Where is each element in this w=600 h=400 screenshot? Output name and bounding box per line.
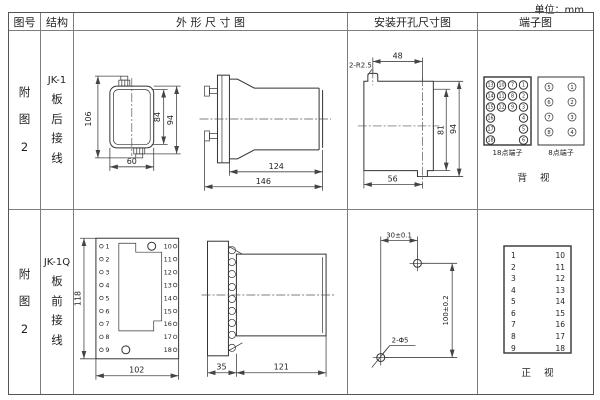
- row2-outline-cell: 1 2 3 4 5 6 7 8 9 10 11 12 13: [74, 210, 348, 394]
- view-label-front: 正 视: [521, 367, 558, 379]
- terminal-number: 9: [511, 344, 516, 353]
- terminal-number: 10: [555, 251, 565, 260]
- fig-char: 2: [21, 142, 28, 154]
- terminal-points-8: 5 1 6 2 7 3 8 4: [545, 83, 576, 136]
- model-label: JK-1: [48, 76, 66, 86]
- top-connector: [119, 76, 130, 86]
- terminal-number: 15: [487, 104, 493, 110]
- structure-char: 前: [51, 296, 63, 308]
- terminal-number: 9: [105, 346, 109, 354]
- terminal-number: 6: [511, 309, 516, 318]
- mounting-hole: [122, 346, 130, 354]
- terminal-number: 16: [487, 115, 493, 121]
- terminal-number: 13: [164, 281, 172, 289]
- terminal-numbers-left: 1 2 3 4 5 6 7 8 9: [511, 251, 516, 353]
- structure-char: 线: [51, 335, 63, 347]
- header-terminal-label: 端子图: [519, 14, 552, 30]
- jk1-outline-drawing: 106 84 94 60: [74, 31, 347, 210]
- terminal-number: 6: [522, 137, 525, 143]
- dim-value: 35: [216, 363, 226, 372]
- terminal-number: 5: [105, 294, 109, 302]
- terminal-number: 5: [522, 126, 525, 132]
- header-outline: 外 形 尺 寸 图: [74, 13, 348, 31]
- terminal-points-18: 13 10 7 1 14 11 8 2 15 12 9 3 16 4 17 5: [486, 80, 527, 143]
- terminal-number: 17: [487, 126, 493, 132]
- terminal-number: 6: [547, 99, 550, 105]
- dim-value: 60: [127, 156, 137, 165]
- terminal-number: 16: [164, 320, 172, 328]
- front-terminals-left: 1 2 3 4 5 6 7 8 9: [100, 242, 110, 354]
- note-holes: 2-Φ5: [383, 337, 416, 354]
- terminal-number: 18: [487, 137, 493, 143]
- terminal-number: 17: [164, 333, 172, 341]
- dimension-table: 图号 结构 外 形 尺 寸 图 安装开孔尺寸图 端子图 附 图 2 JK-1 板…: [8, 12, 594, 395]
- front-terminals-right: 10 11 12 13 14 15 16 17 18: [164, 242, 177, 354]
- dim-value: 100±0.2: [442, 295, 450, 325]
- terminal-number: 7: [547, 114, 550, 120]
- row1-terminal-cell: 13 10 7 1 14 11 8 2 15 12 9 3 16 4 17 5: [478, 31, 593, 210]
- jk1q-side-view: 35 121: [202, 241, 336, 377]
- terminal-number: 4: [522, 115, 525, 121]
- note-value: 2-R2.5: [349, 61, 372, 69]
- row1-fig-no: 附 图 2: [9, 31, 41, 210]
- terminal-number: 3: [105, 268, 109, 276]
- terminal-number: 3: [570, 114, 573, 120]
- terminal-number: 14: [555, 297, 565, 306]
- jk1q-terminal-drawing: 1 2 3 4 5 6 7 8 9 10 11 12 13 14 15: [478, 210, 593, 394]
- terminal-number: 8: [105, 333, 109, 341]
- terminal-number: 1: [511, 251, 516, 260]
- dim-118: 118: [74, 238, 96, 359]
- terminal-number: 7: [511, 82, 514, 88]
- terminal-number: 2: [522, 93, 525, 99]
- terminal-number: 11: [498, 93, 504, 99]
- dim-81: 81: [433, 89, 450, 170]
- structure-char: 板: [51, 276, 63, 288]
- fig-char: 附: [19, 87, 31, 99]
- flange: [208, 241, 229, 356]
- terminal-number: 13: [487, 82, 493, 88]
- dim-56: 56: [364, 170, 423, 188]
- jk1-front-view: 106 84 94 60: [84, 76, 181, 171]
- dim-value: 81: [436, 124, 445, 134]
- terminal-number: 2: [105, 255, 109, 263]
- dim-value: 146: [256, 176, 271, 185]
- terminal-number: 8: [511, 93, 514, 99]
- terminal-number: 10: [164, 242, 172, 250]
- jk1-side-view: 124 146: [200, 75, 332, 191]
- header-fig-no: 图号: [9, 13, 41, 31]
- row1-install-cell: 2-R2.5 48 81 94: [348, 31, 478, 210]
- dim-121: 121: [236, 363, 326, 373]
- structure-char: 后: [51, 114, 63, 126]
- terminal-number: 3: [511, 274, 516, 283]
- terminal-8-label: 8点端子: [548, 148, 573, 157]
- terminal-number: 15: [555, 309, 565, 318]
- terminal-number: 5: [511, 297, 516, 306]
- cutout-outline: [364, 73, 433, 176]
- dim-value: 84: [153, 111, 162, 121]
- terminal-number: 9: [511, 104, 514, 110]
- terminal-number: 8: [511, 332, 516, 341]
- dim-value: 94: [449, 123, 458, 133]
- row2-terminal-cell: 1 2 3 4 5 6 7 8 9 10 11 12 13 14 15: [478, 210, 593, 394]
- terminal-screws: [205, 86, 218, 141]
- jk1-install-drawing: 2-R2.5 48 81 94: [348, 31, 477, 210]
- terminal-number: 2: [570, 99, 573, 105]
- terminal-number: 14: [164, 294, 172, 302]
- row1-structure: JK-1 板 后 接 线: [41, 31, 74, 210]
- terminal-number: 11: [555, 263, 565, 272]
- dim-value: 48: [393, 51, 403, 60]
- dim-value: 121: [274, 363, 289, 372]
- model-label: JK-1Q: [44, 258, 70, 268]
- dim-value: 106: [84, 111, 93, 126]
- header-install-label: 安装开孔尺寸图: [374, 14, 451, 30]
- terminal-number: 14: [487, 93, 493, 99]
- dim-60: 60: [110, 147, 154, 170]
- structure-char: 接: [51, 315, 63, 327]
- dim-value: 56: [388, 174, 398, 183]
- dim-48: 48: [373, 51, 423, 81]
- header-terminal: 端子图: [478, 13, 593, 31]
- terminal-screws: [228, 247, 235, 352]
- terminal-number: 1: [570, 84, 573, 90]
- terminal-number: 7: [511, 320, 516, 329]
- terminal-number: 4: [511, 286, 516, 295]
- terminal-number: 17: [555, 332, 565, 341]
- jk1q-front-view: 1 2 3 4 5 6 7 8 9 10 11 12 13: [74, 238, 179, 379]
- dim-30: 30±0.1: [381, 232, 418, 350]
- terminal-numbers-right: 10 11 12 13 14 15 16 17 18: [555, 251, 565, 353]
- inner-cutout-outline: [119, 243, 162, 331]
- terminal-number: 3: [522, 104, 525, 110]
- terminal-number: 12: [498, 104, 504, 110]
- row2-install-cell: 30±0.1 100±0.2 2-Φ5: [348, 210, 478, 394]
- terminal-number: 2: [511, 263, 516, 272]
- terminal-number: 5: [547, 84, 550, 90]
- note-value: 2-Φ5: [392, 337, 409, 345]
- dim-value: 30±0.1: [386, 232, 412, 240]
- header-install: 安装开孔尺寸图: [348, 13, 478, 31]
- row2-structure: JK-1Q 板 前 接 线: [41, 210, 74, 394]
- row1-outline-cell: 106 84 94 60: [74, 31, 348, 210]
- terminal-number: 10: [498, 82, 504, 88]
- terminal-number: 11: [164, 255, 172, 263]
- terminal-number: 4: [570, 129, 574, 135]
- row2-fig-no: 附 图 2: [9, 210, 41, 394]
- header-structure: 结构: [41, 13, 74, 31]
- jk1q-outline-drawing: 1 2 3 4 5 6 7 8 9 10 11 12 13: [74, 210, 347, 394]
- terminal-number: 4: [105, 281, 109, 289]
- terminal-number: 15: [164, 307, 172, 315]
- header-structure-label: 结构: [46, 14, 68, 30]
- terminal-number: 18: [555, 344, 565, 353]
- terminal-number: 6: [105, 307, 109, 315]
- jk1-terminal-drawing: 13 10 7 1 14 11 8 2 15 12 9 3 16 4 17 5: [478, 31, 593, 210]
- fig-char: 附: [19, 269, 31, 281]
- dim-value: 118: [74, 291, 82, 306]
- terminal-number: 13: [555, 286, 565, 295]
- terminal-18-label: 18点端子: [493, 148, 523, 157]
- header-outline-label: 外 形 尺 寸 图: [176, 14, 245, 30]
- header-fig-no-label: 图号: [14, 14, 36, 30]
- datasheet-page: 单位：mm 图号 结构 外 形 尺 寸 图 安装开孔尺寸图 端子图 附 图 2 …: [0, 0, 600, 400]
- terminal-number: 16: [555, 320, 565, 329]
- terminal-number: 18: [164, 346, 172, 354]
- dim-102: 102: [96, 359, 179, 380]
- terminal-number: 12: [555, 274, 565, 283]
- jk1q-install-drawing: 30±0.1 100±0.2 2-Φ5: [348, 210, 477, 394]
- structure-char: 板: [51, 94, 63, 106]
- fig-char: 图: [19, 114, 31, 126]
- fig-char: 图: [19, 296, 31, 308]
- dim-value: 124: [269, 161, 284, 170]
- fig-char: 2: [21, 324, 28, 336]
- terminal-number: 12: [164, 268, 172, 276]
- view-label-back: 背 视: [517, 172, 554, 184]
- structure-char: 线: [51, 153, 63, 165]
- mounting-hole: [148, 242, 156, 250]
- terminal-number: 1: [522, 82, 525, 88]
- terminal-number: 1: [105, 242, 109, 250]
- structure-char: 接: [51, 133, 63, 145]
- dim-value: 102: [129, 366, 144, 375]
- terminal-number: 7: [105, 320, 109, 328]
- terminal-number: 8: [547, 129, 550, 135]
- dim-value: 94: [166, 114, 175, 124]
